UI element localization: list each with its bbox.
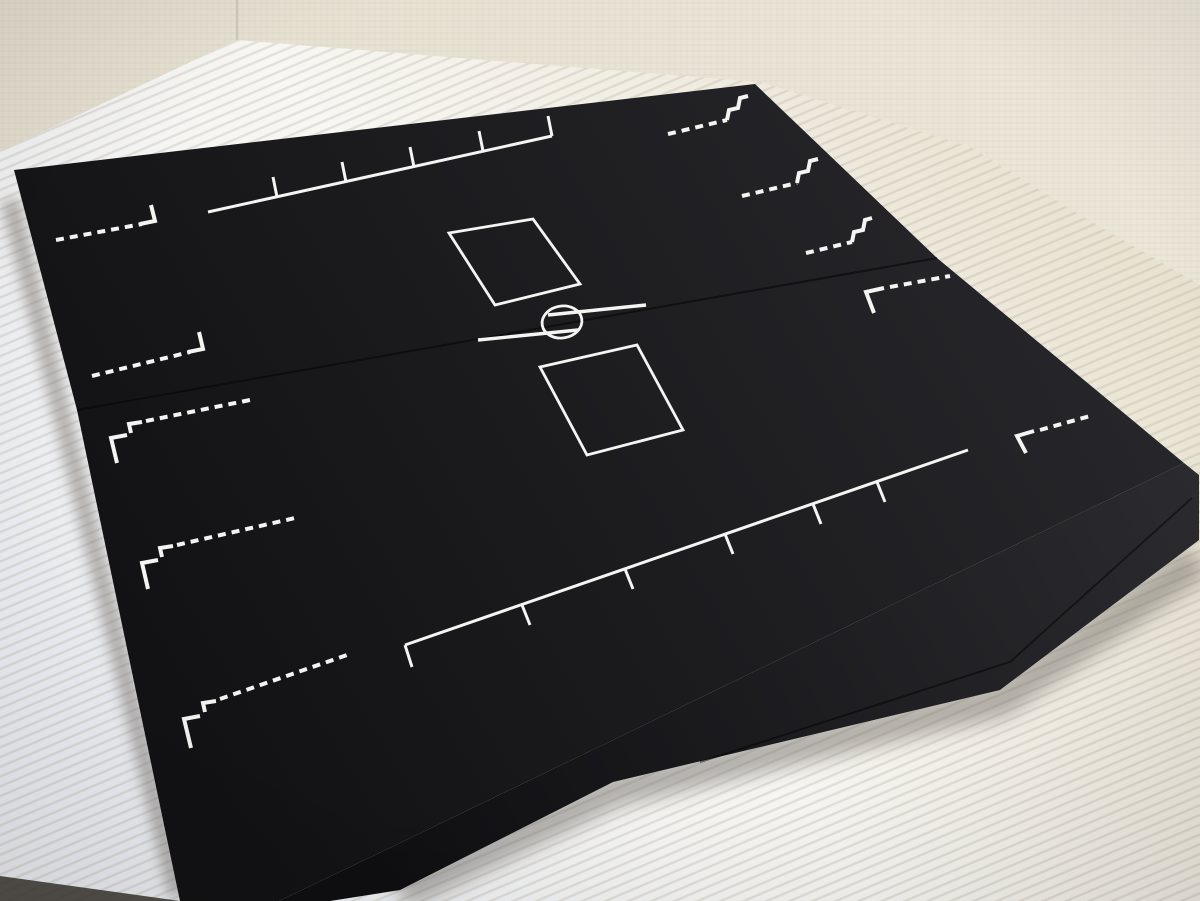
photo-canvas [0, 0, 1200, 901]
vignette-overlay [0, 0, 1200, 901]
photo-of-black-game-board [0, 0, 1200, 901]
